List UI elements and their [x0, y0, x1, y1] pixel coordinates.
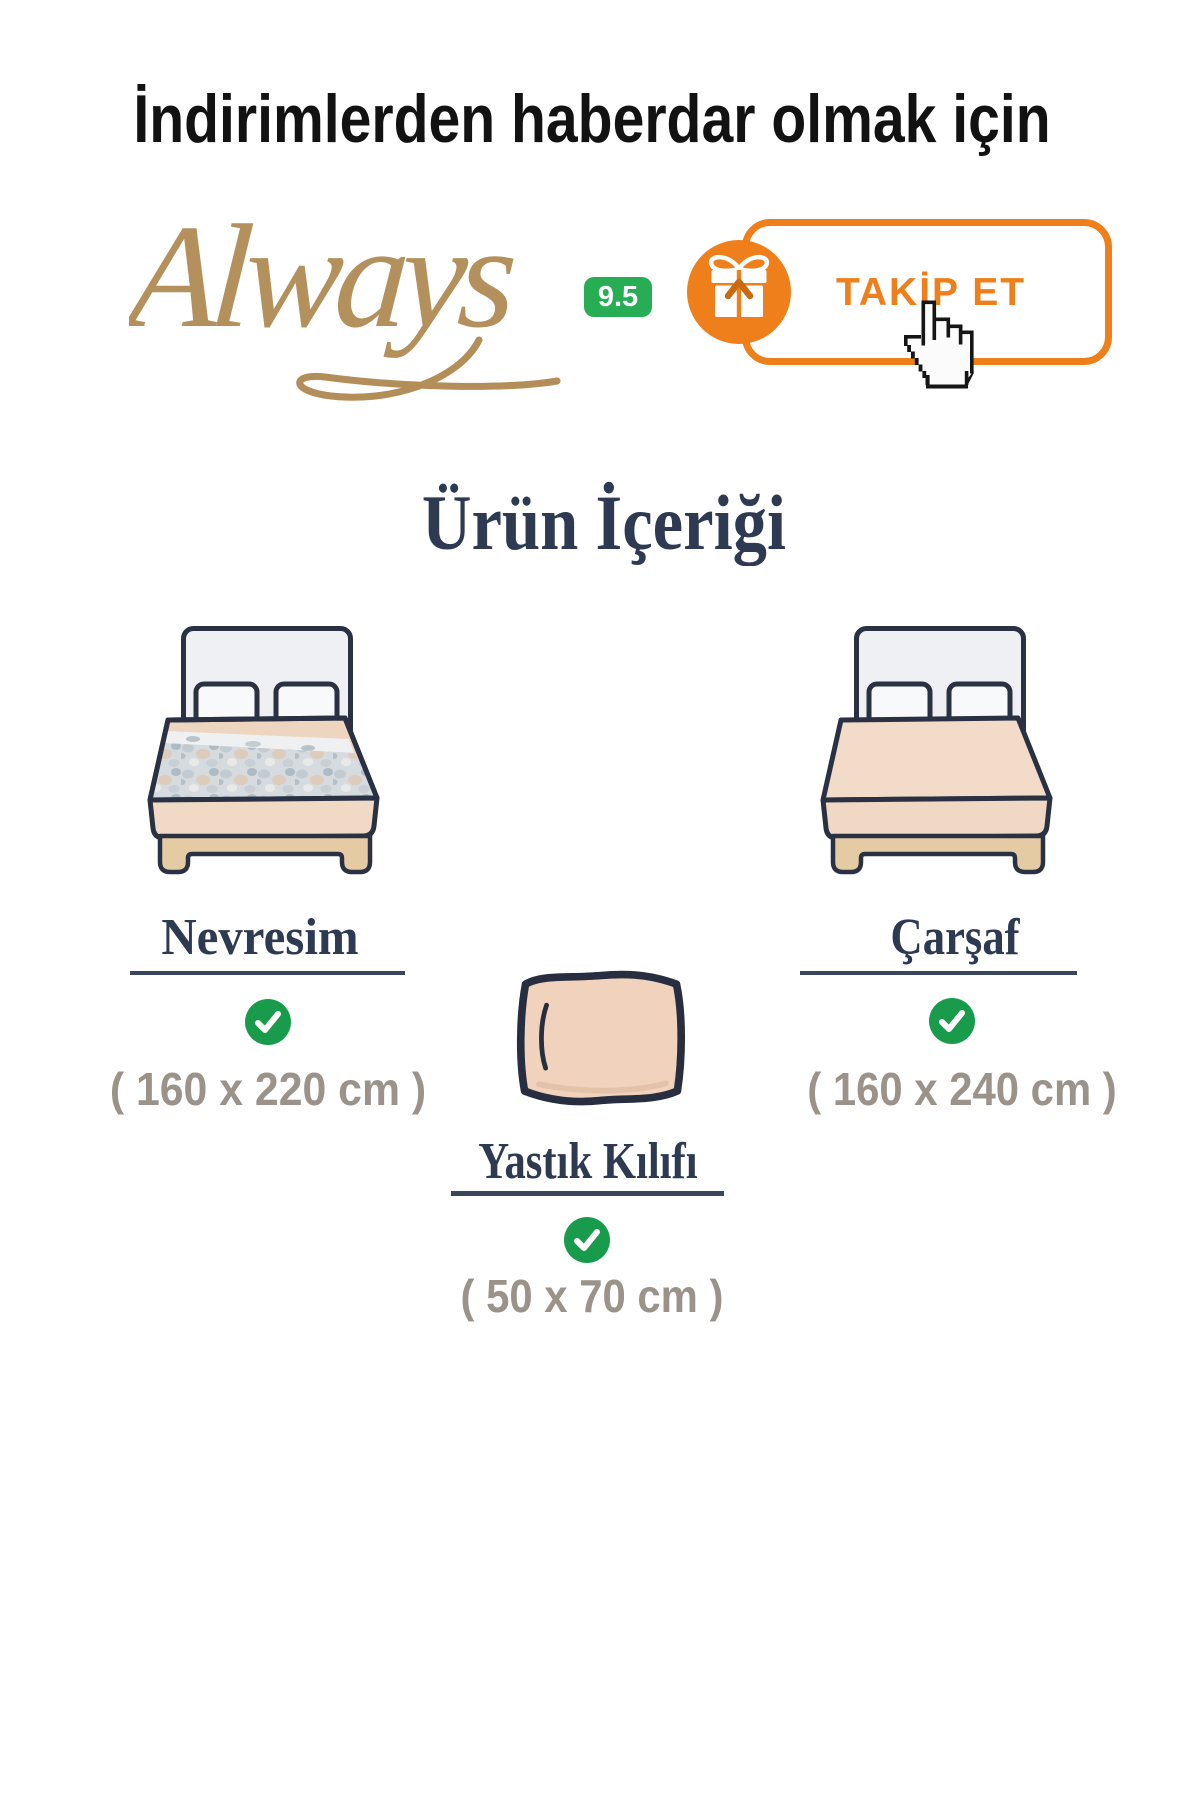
svg-text:Always: Always	[129, 195, 519, 359]
